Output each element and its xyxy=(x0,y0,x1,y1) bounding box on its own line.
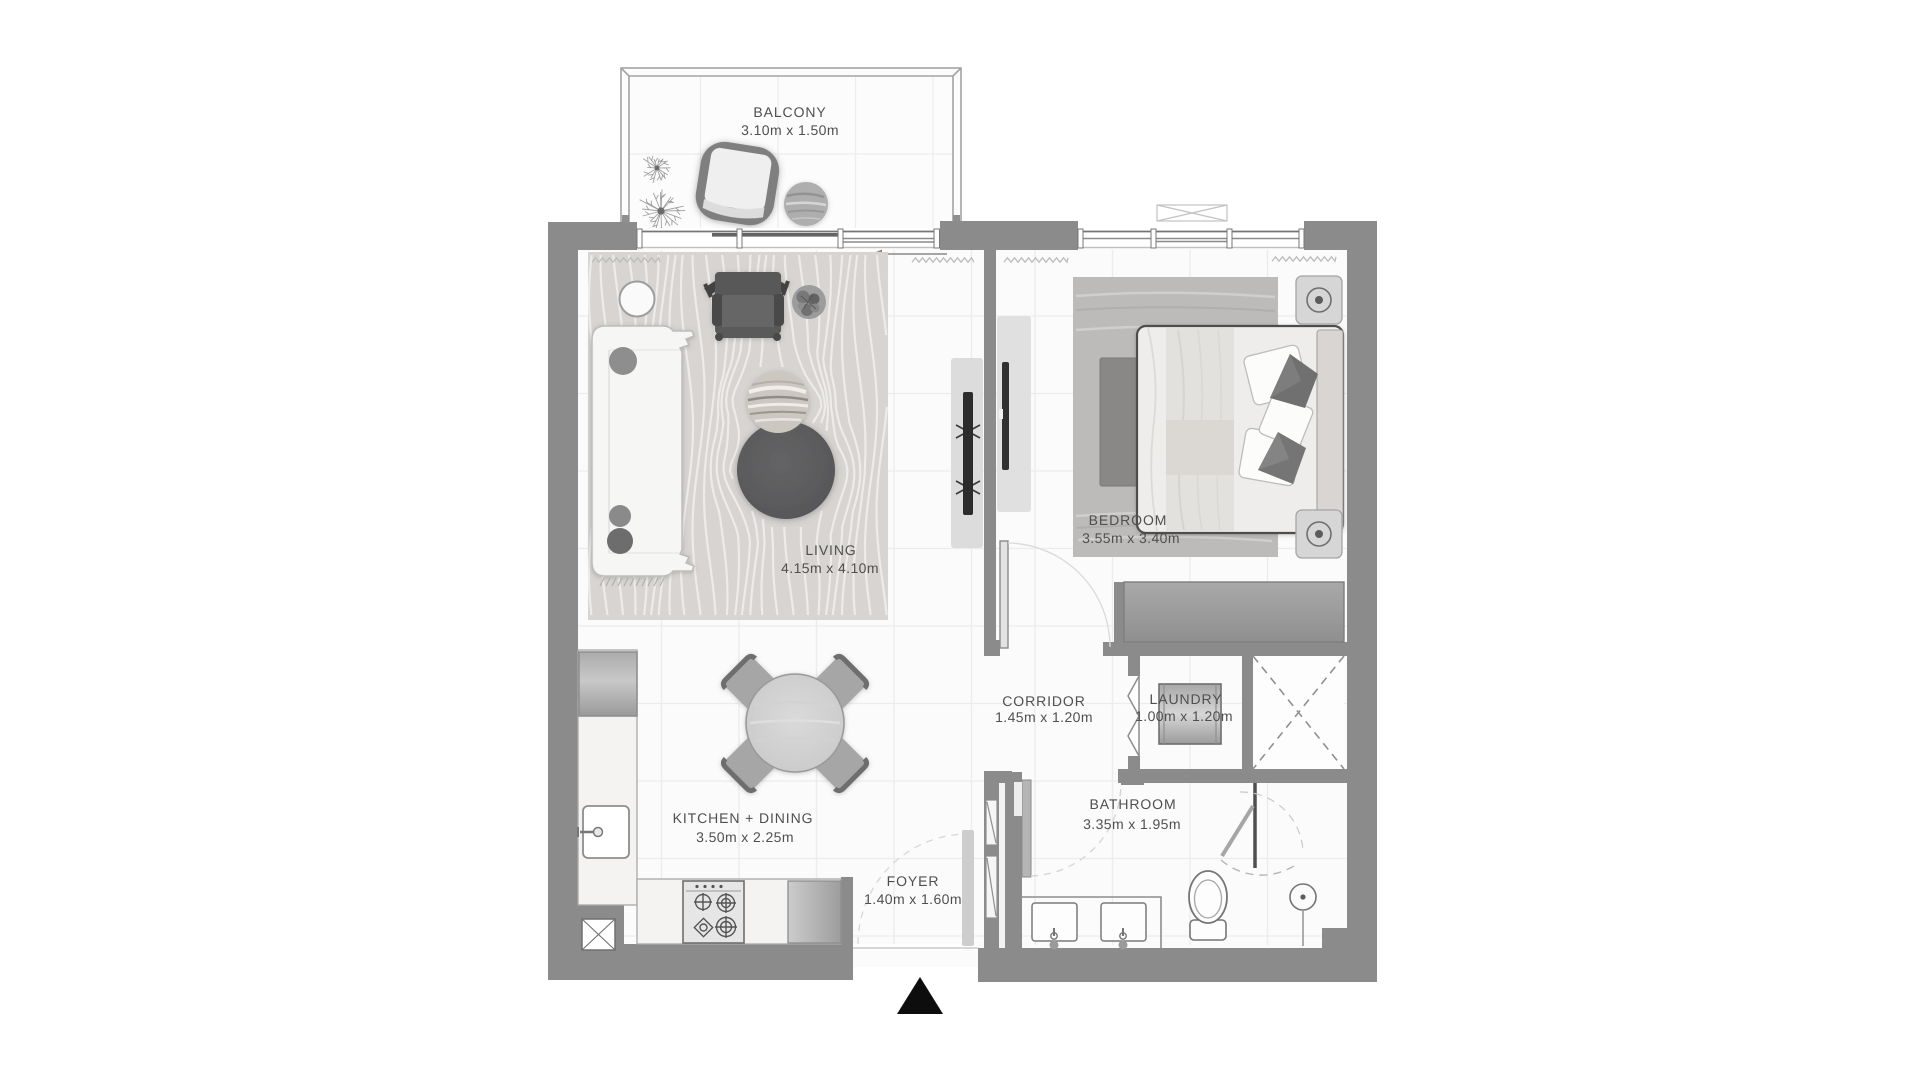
svg-text:BEDROOM: BEDROOM xyxy=(1089,512,1168,528)
svg-text:LAUNDRY: LAUNDRY xyxy=(1150,691,1223,707)
svg-text:BALCONY: BALCONY xyxy=(753,104,826,120)
svg-text:3.10m x 1.50m: 3.10m x 1.50m xyxy=(741,122,839,138)
svg-text:1.45m x 1.20m: 1.45m x 1.20m xyxy=(995,709,1093,725)
svg-text:BATHROOM: BATHROOM xyxy=(1089,796,1176,812)
svg-text:3.50m x 2.25m: 3.50m x 2.25m xyxy=(696,829,794,845)
svg-text:1.00m x 1.20m: 1.00m x 1.20m xyxy=(1135,708,1233,724)
svg-text:3.35m x 1.95m: 3.35m x 1.95m xyxy=(1083,816,1181,832)
svg-text:FOYER: FOYER xyxy=(887,873,940,889)
svg-text:4.15m x 4.10m: 4.15m x 4.10m xyxy=(781,560,879,576)
svg-text:CORRIDOR: CORRIDOR xyxy=(1002,693,1085,709)
svg-text:KITCHEN + DINING: KITCHEN + DINING xyxy=(673,810,814,826)
svg-text:1.40m x 1.60m: 1.40m x 1.60m xyxy=(864,891,962,907)
svg-text:LIVING: LIVING xyxy=(805,542,856,558)
svg-text:3.55m x 3.40m: 3.55m x 3.40m xyxy=(1082,530,1180,546)
